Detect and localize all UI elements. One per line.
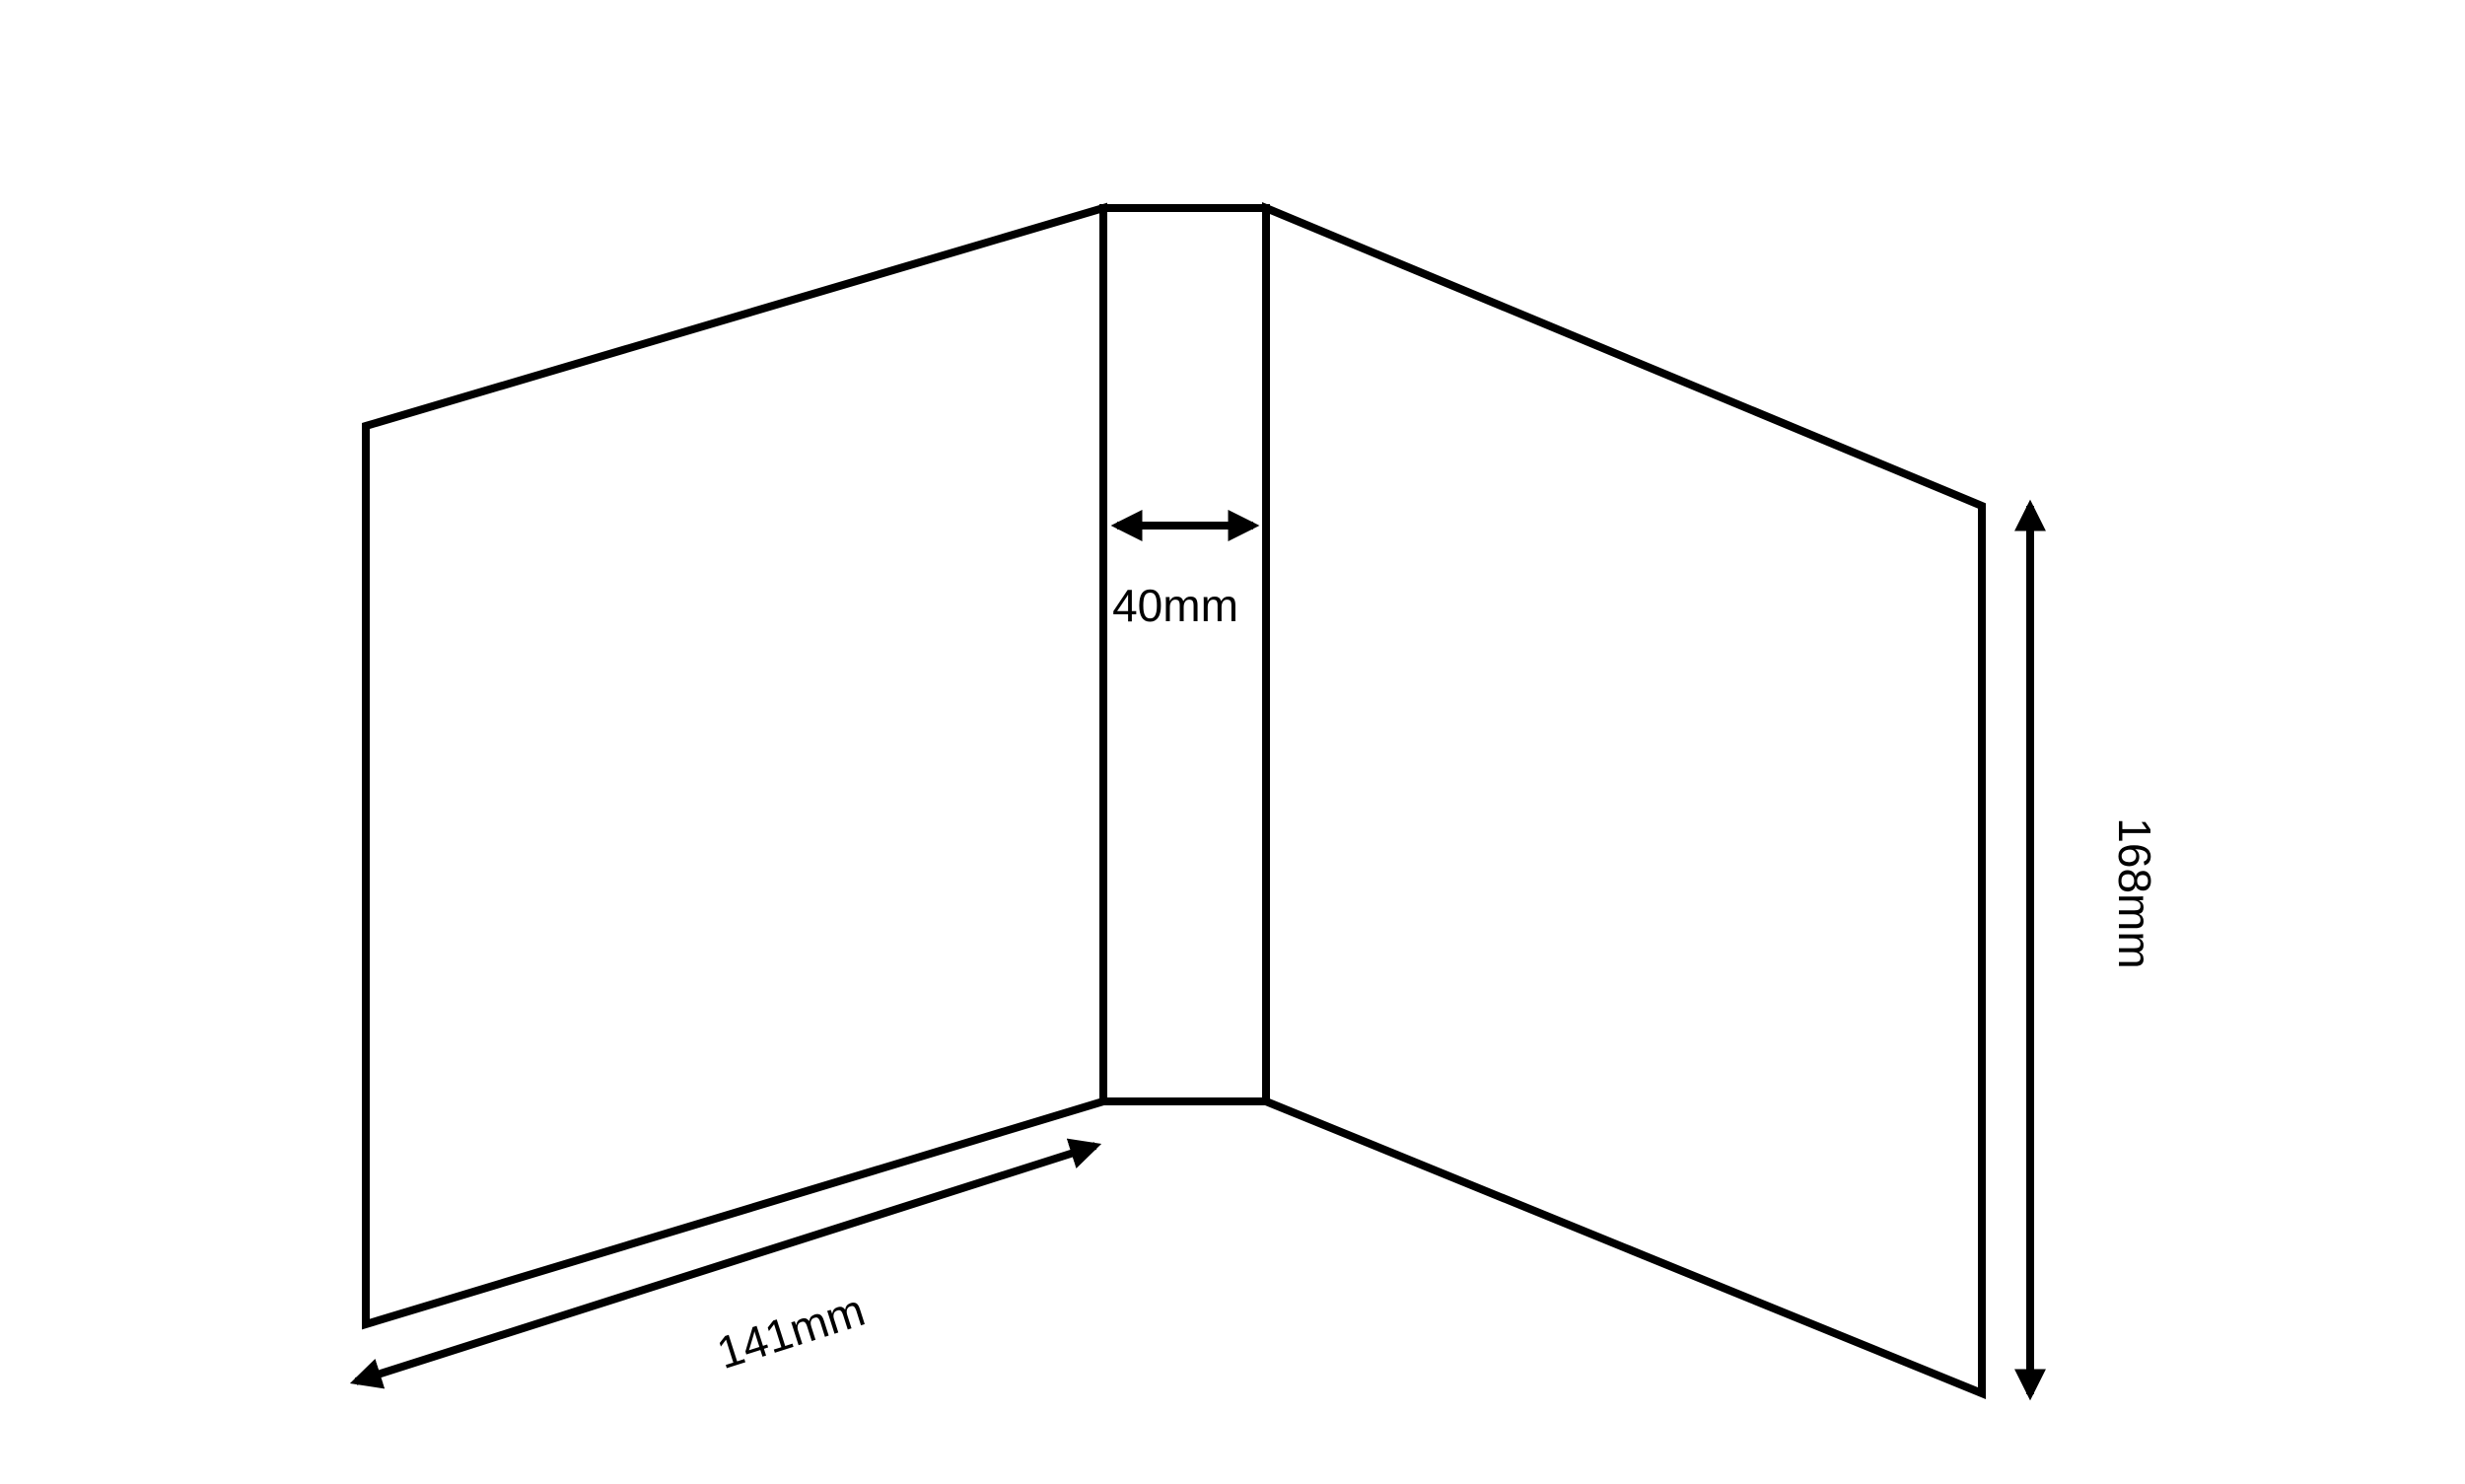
cover-width-label: 141mm bbox=[711, 1284, 871, 1378]
right-cover-panel bbox=[1266, 208, 1982, 1393]
spine-width-label: 40mm bbox=[1112, 580, 1238, 631]
cover-height-label: 168mm bbox=[2109, 817, 2160, 968]
diagram-canvas: 40mm 141mm 168mm bbox=[0, 0, 2465, 1484]
binder-dimension-diagram: 40mm 141mm 168mm bbox=[0, 0, 2465, 1484]
left-cover-panel bbox=[366, 208, 1103, 1324]
spine-panel bbox=[1103, 208, 1266, 1101]
